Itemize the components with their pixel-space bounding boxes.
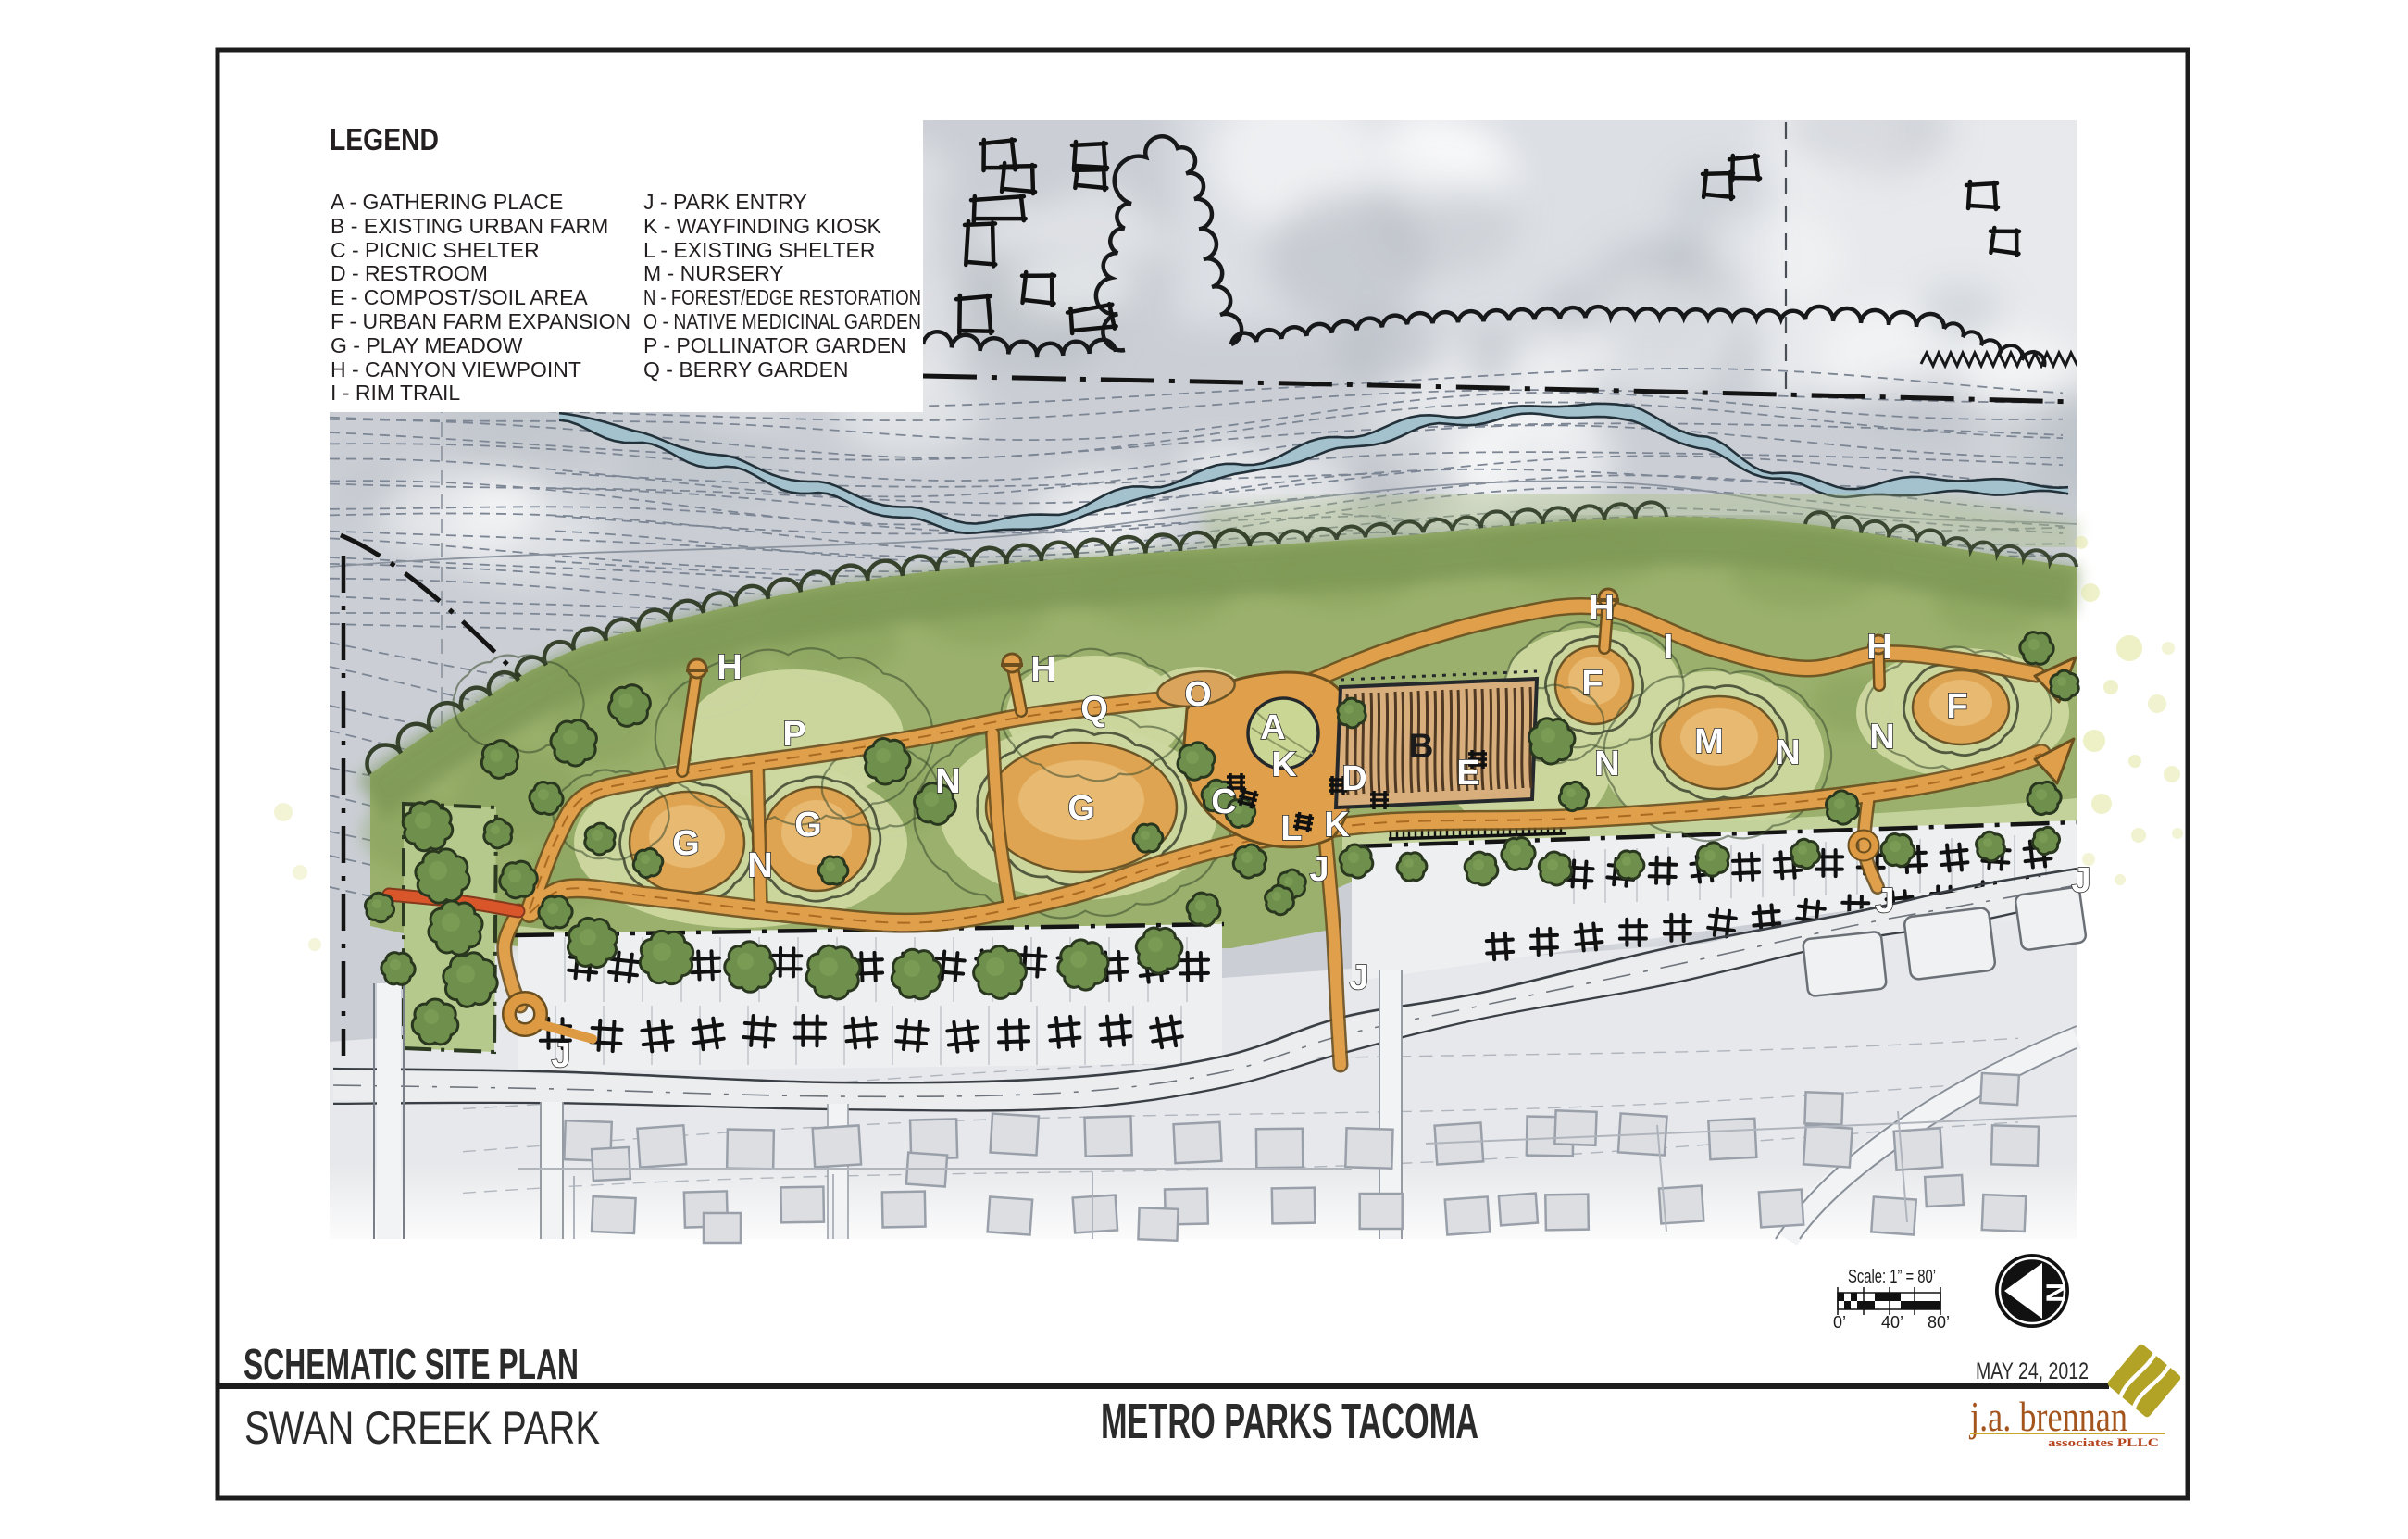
svg-text:J: J (2071, 861, 2090, 900)
svg-text:A: A (1260, 708, 1285, 747)
svg-text:SCHEMATIC SITE PLAN: SCHEMATIC SITE PLAN (243, 1340, 579, 1388)
svg-text:F: F (1946, 687, 1967, 726)
svg-text:H: H (1589, 589, 1614, 628)
svg-text:F: F (1581, 664, 1603, 703)
svg-text:G: G (794, 806, 822, 845)
svg-text:O - NATIVE MEDICINAL GARDEN: O - NATIVE MEDICINAL GARDEN (643, 309, 921, 333)
svg-text:J: J (551, 1036, 570, 1075)
svg-text:J - PARK ENTRY: J - PARK ENTRY (643, 190, 807, 214)
svg-text:B - EXISTING URBAN FARM: B - EXISTING URBAN FARM (331, 214, 608, 238)
svg-text:J: J (1309, 850, 1329, 889)
svg-text:O: O (1184, 675, 1212, 714)
svg-text:J: J (1349, 958, 1368, 997)
svg-text:M: M (1694, 722, 1724, 761)
svg-text:I: I (1664, 628, 1674, 667)
svg-text:Scale: 1” = 80’: Scale: 1” = 80’ (1848, 1267, 1936, 1287)
svg-text:F - URBAN FARM EXPANSION: F - URBAN FARM EXPANSION (331, 309, 630, 333)
svg-text:I - RIM TRAIL: I - RIM TRAIL (331, 381, 460, 405)
svg-text:N: N (1594, 744, 1619, 783)
svg-text:E: E (1456, 754, 1479, 793)
svg-text:H - CANYON VIEWPOINT: H - CANYON VIEWPOINT (331, 357, 581, 382)
svg-text:C: C (1211, 782, 1236, 821)
svg-text:M - NURSERY: M - NURSERY (643, 261, 784, 285)
svg-text:N: N (2040, 1282, 2071, 1303)
svg-text:D: D (1341, 759, 1366, 798)
svg-text:Q - BERRY GARDEN: Q - BERRY GARDEN (643, 357, 849, 382)
svg-text:D - RESTROOM: D - RESTROOM (331, 261, 488, 285)
svg-text:Q: Q (1080, 690, 1108, 729)
svg-text:METRO PARKS TACOMA: METRO PARKS TACOMA (1101, 1394, 1478, 1449)
svg-text:J: J (1875, 882, 1894, 920)
svg-text:N: N (1869, 718, 1894, 757)
svg-text:P - POLLINATOR GARDEN: P - POLLINATOR GARDEN (643, 333, 906, 357)
svg-text:L - EXISTING SHELTER: L - EXISTING SHELTER (643, 238, 876, 262)
svg-text:B: B (1409, 727, 1434, 765)
svg-text:G - PLAY MEADOW: G - PLAY MEADOW (331, 333, 523, 357)
svg-text:associates PLLC: associates PLLC (2048, 1435, 2159, 1449)
svg-text:C - PICNIC SHELTER: C - PICNIC SHELTER (331, 238, 540, 262)
svg-text:N: N (747, 846, 772, 885)
svg-text:0’: 0’ (1833, 1313, 1846, 1332)
svg-text:K: K (1271, 745, 1297, 784)
svg-text:K: K (1324, 806, 1350, 845)
svg-text:40’: 40’ (1881, 1313, 1903, 1332)
svg-text:L: L (1280, 809, 1302, 848)
svg-text:A - GATHERING PLACE: A - GATHERING PLACE (331, 190, 563, 214)
svg-text:N: N (1775, 733, 1800, 772)
svg-text:N: N (935, 762, 960, 801)
svg-text:MAY 24, 2012: MAY 24, 2012 (1976, 1358, 2089, 1384)
svg-text:H: H (1866, 628, 1891, 667)
svg-text:N - FOREST/EDGE RESTORATION: N - FOREST/EDGE RESTORATION (643, 285, 921, 309)
svg-text:LEGEND: LEGEND (330, 122, 439, 156)
svg-text:H: H (1030, 650, 1055, 689)
svg-text:80’: 80’ (1928, 1313, 1950, 1332)
svg-text:K - WAYFINDING KIOSK: K - WAYFINDING KIOSK (643, 214, 882, 238)
svg-text:SWAN CREEK PARK: SWAN CREEK PARK (244, 1402, 600, 1454)
svg-text:P: P (782, 715, 805, 754)
svg-text:H: H (717, 648, 742, 687)
svg-text:G: G (1067, 789, 1095, 828)
svg-text:E - COMPOST/SOIL AREA: E - COMPOST/SOIL AREA (331, 285, 588, 309)
svg-text:G: G (672, 824, 700, 863)
